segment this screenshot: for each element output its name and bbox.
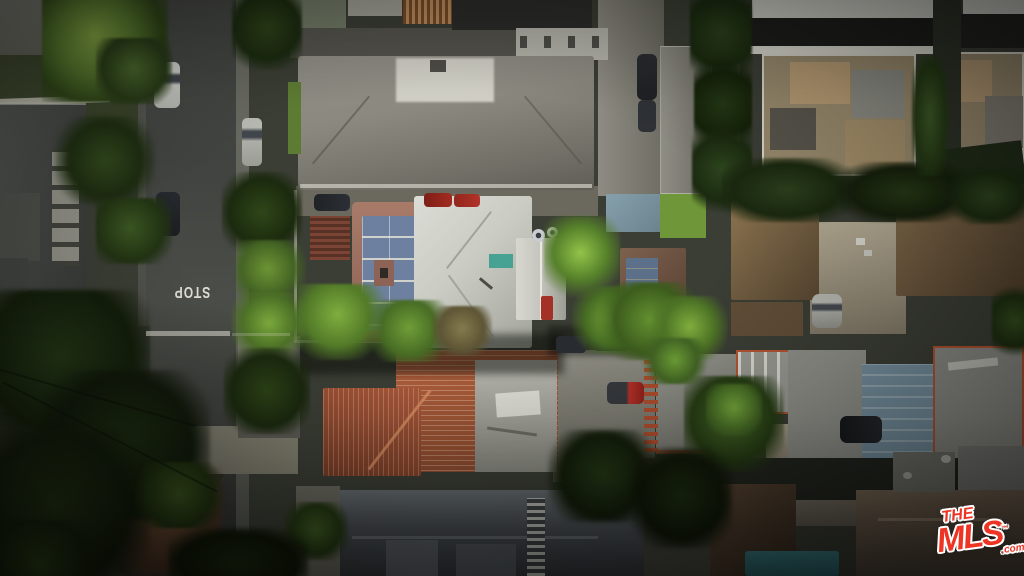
stop-bar-line — [146, 331, 230, 336]
tree-br-courtyard-bright — [706, 384, 762, 436]
trees-mid-right-band-3 — [950, 168, 1024, 224]
trees-bottom-center-left — [168, 528, 308, 576]
car-red-lot-2 — [454, 194, 480, 207]
green-strip-between-tan — [912, 56, 948, 176]
car-white-road-2 — [242, 118, 262, 166]
ac-unit-courtyard-2 — [864, 250, 872, 256]
aerial-photo: STOP THE MLS™ .com — [0, 0, 1024, 576]
roof-small-white-top — [348, 0, 402, 16]
aerial-scene-shapes — [0, 0, 1024, 576]
dark-shingle-gable-1 — [386, 540, 438, 576]
satellite-dish-1 — [941, 455, 951, 463]
tan-roof-patch-2 — [852, 70, 904, 118]
modern-building-balcony-band-1 — [750, 18, 938, 48]
roof-large-gray-chimney — [430, 60, 446, 72]
stairs-striped — [527, 498, 545, 576]
car-red-lot-1 — [424, 193, 452, 207]
roof-gray-wing-patch — [495, 390, 541, 417]
structure-left-edge-1 — [0, 193, 40, 261]
house-blue-br — [862, 364, 938, 464]
crosswalk-faint-line — [232, 333, 290, 336]
roof-gray-small-2 — [958, 446, 1024, 490]
bush-left-mid — [96, 198, 172, 264]
roof-vent-dark — [380, 268, 388, 278]
mls-watermark-logo: THE MLS™ .com — [933, 500, 1024, 564]
tree-column-low — [224, 348, 310, 434]
windows-top-wall — [520, 36, 606, 48]
suv-dark-driveway-br — [840, 416, 882, 443]
lawn-strip-left-of-large-roof — [288, 82, 301, 154]
pool — [745, 551, 839, 576]
tan-roof-patch-3 — [770, 108, 816, 150]
roof-dark-flat-top — [452, 0, 592, 30]
house-dark-left-eave — [0, 102, 86, 105]
car-dark-alley-2 — [638, 100, 656, 132]
structure-left-edge-2 — [0, 258, 28, 294]
modern-building-edge-1 — [750, 46, 938, 54]
trees-mid-right-band-1 — [722, 158, 852, 222]
garage-brown-right-a — [731, 302, 803, 336]
stop-road-marking: STOP — [172, 280, 212, 303]
equipment-red — [541, 296, 553, 320]
tan-roof-patch-1 — [790, 62, 850, 104]
tree-bottom-left-corner — [0, 520, 100, 576]
tree-top-road-column — [232, 0, 302, 70]
pergola-red — [310, 216, 350, 260]
modern-building-roof-1 — [752, 0, 938, 20]
car-red-parking — [607, 382, 644, 404]
tan-roof-patch-4 — [845, 120, 905, 166]
dark-shingle-ridge — [352, 536, 598, 539]
tree-top-left-2 — [96, 38, 172, 104]
tree-parking-top-bright — [642, 338, 708, 384]
bush-dry-tan — [432, 306, 492, 356]
satellite-dish-2 — [903, 472, 912, 479]
skylight-teal — [489, 254, 513, 268]
car-silver-courtyard — [812, 294, 842, 328]
ac-unit-courtyard-1 — [856, 238, 865, 245]
mls-watermark-tm: ™ — [1001, 525, 1009, 533]
tree-right-edge-mid — [992, 286, 1024, 356]
modern-building-balcony-band-2 — [958, 14, 1024, 48]
dark-shingle-gable-2 — [456, 544, 516, 576]
roof-striped-top — [403, 0, 455, 24]
suv-dark-lot — [314, 194, 350, 211]
trees-bottom-center-2 — [632, 448, 732, 548]
car-dark-alley-1 — [637, 54, 657, 100]
scrub-left-column — [55, 116, 155, 204]
roof-large-gray-eave — [300, 184, 592, 188]
roof-gray-br-2 — [788, 350, 866, 464]
